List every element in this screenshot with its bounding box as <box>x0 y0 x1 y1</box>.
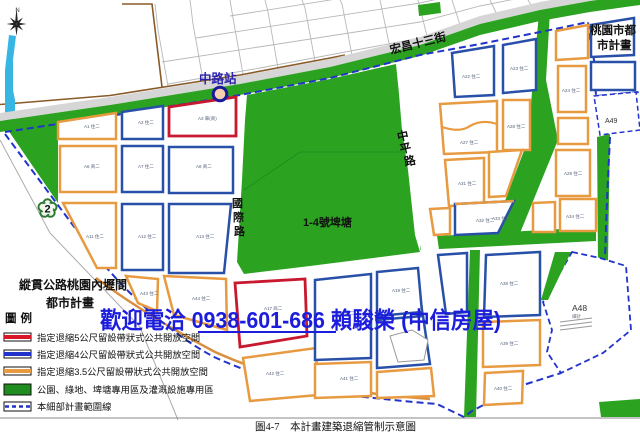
svg-text:中路站: 中路站 <box>199 71 237 86</box>
svg-text:縱貫公路桃園內壢間: 縱貫公路桃園內壢間 <box>19 277 127 292</box>
svg-text:細計: 細計 <box>572 313 581 320</box>
svg-text:A19 住二: A19 住二 <box>392 287 411 293</box>
svg-text:A38 住二: A38 住二 <box>500 280 519 286</box>
svg-text:圖4-7 本計畫建築退縮管制示意圖: 圖4-7 本計畫建築退縮管制示意圖 <box>255 420 416 433</box>
svg-text:A1 住二: A1 住二 <box>84 123 100 129</box>
svg-text:國: 國 <box>232 197 243 210</box>
svg-text:指定退縮3.5公尺留設帶狀式公共開放空間: 指定退縮3.5公尺留設帶狀式公共開放空間 <box>37 366 208 377</box>
svg-text:指定退縮5公尺留設帶狀式公共開放空間: 指定退縮5公尺留設帶狀式公共開放空間 <box>37 332 200 343</box>
svg-text:N: N <box>15 8 19 14</box>
svg-text:市計畫: 市計畫 <box>597 38 632 52</box>
svg-text:A6 商二: A6 商二 <box>84 163 100 170</box>
svg-text:A31 住二: A31 住二 <box>458 180 477 186</box>
svg-text:本細部計畫範圍線: 本細部計畫範圍線 <box>37 401 111 412</box>
svg-text:A8 商二: A8 商二 <box>196 163 212 170</box>
svg-text:A22 住二: A22 住二 <box>462 73 481 79</box>
svg-text:圖例: 圖例 <box>5 311 36 325</box>
svg-text:A11 住二: A11 住二 <box>86 233 104 239</box>
svg-text:歡迎電洽 0938-601-686 賴駿榮 (中信房屋): 歡迎電洽 0938-601-686 賴駿榮 (中信房屋) <box>100 307 501 333</box>
svg-text:A3 車(商): A3 車(商) <box>198 115 217 122</box>
svg-text:公園、綠地、埤塘專用區及灌溉設施專用區: 公園、綠地、埤塘專用區及灌溉設施專用區 <box>37 384 214 395</box>
svg-text:A43 住二: A43 住二 <box>140 290 159 296</box>
svg-text:A34 住二: A34 住二 <box>566 213 585 219</box>
svg-text:A44 住二: A44 住二 <box>192 295 211 301</box>
svg-text:A48: A48 <box>572 303 587 313</box>
svg-text:都市計畫: 都市計畫 <box>45 295 94 310</box>
svg-text:A40 住二: A40 住二 <box>494 385 513 391</box>
svg-text:A24 住二: A24 住二 <box>562 87 581 93</box>
svg-text:A42 住二: A42 住二 <box>266 370 285 376</box>
svg-text:A49: A49 <box>605 118 618 125</box>
svg-text:A23 住二: A23 住二 <box>510 65 529 71</box>
svg-text:A39 住二: A39 住二 <box>500 340 519 346</box>
svg-text:A13 住二: A13 住二 <box>196 233 215 239</box>
svg-text:A7 住二: A7 住二 <box>138 163 154 169</box>
svg-text:A29 住二: A29 住二 <box>564 170 583 176</box>
svg-text:桃園市都: 桃園市都 <box>590 23 636 37</box>
svg-text:際: 際 <box>233 210 245 224</box>
svg-text:指定退縮4公尺留設帶狀式公共開放空間: 指定退縮4公尺留設帶狀式公共開放空間 <box>37 349 200 360</box>
svg-text:A12 住二: A12 住二 <box>138 233 157 239</box>
svg-text:路: 路 <box>234 224 246 238</box>
svg-text:A28 住二: A28 住二 <box>507 123 526 129</box>
svg-text:A41 住二: A41 住二 <box>340 375 359 381</box>
svg-text:A33 住二: A33 住二 <box>492 215 511 221</box>
svg-text:A27 住二: A27 住二 <box>460 139 479 145</box>
svg-text:2: 2 <box>44 203 50 215</box>
svg-text:A2 住二: A2 住二 <box>138 119 154 125</box>
svg-text:1-4號埤塘: 1-4號埤塘 <box>303 215 352 229</box>
